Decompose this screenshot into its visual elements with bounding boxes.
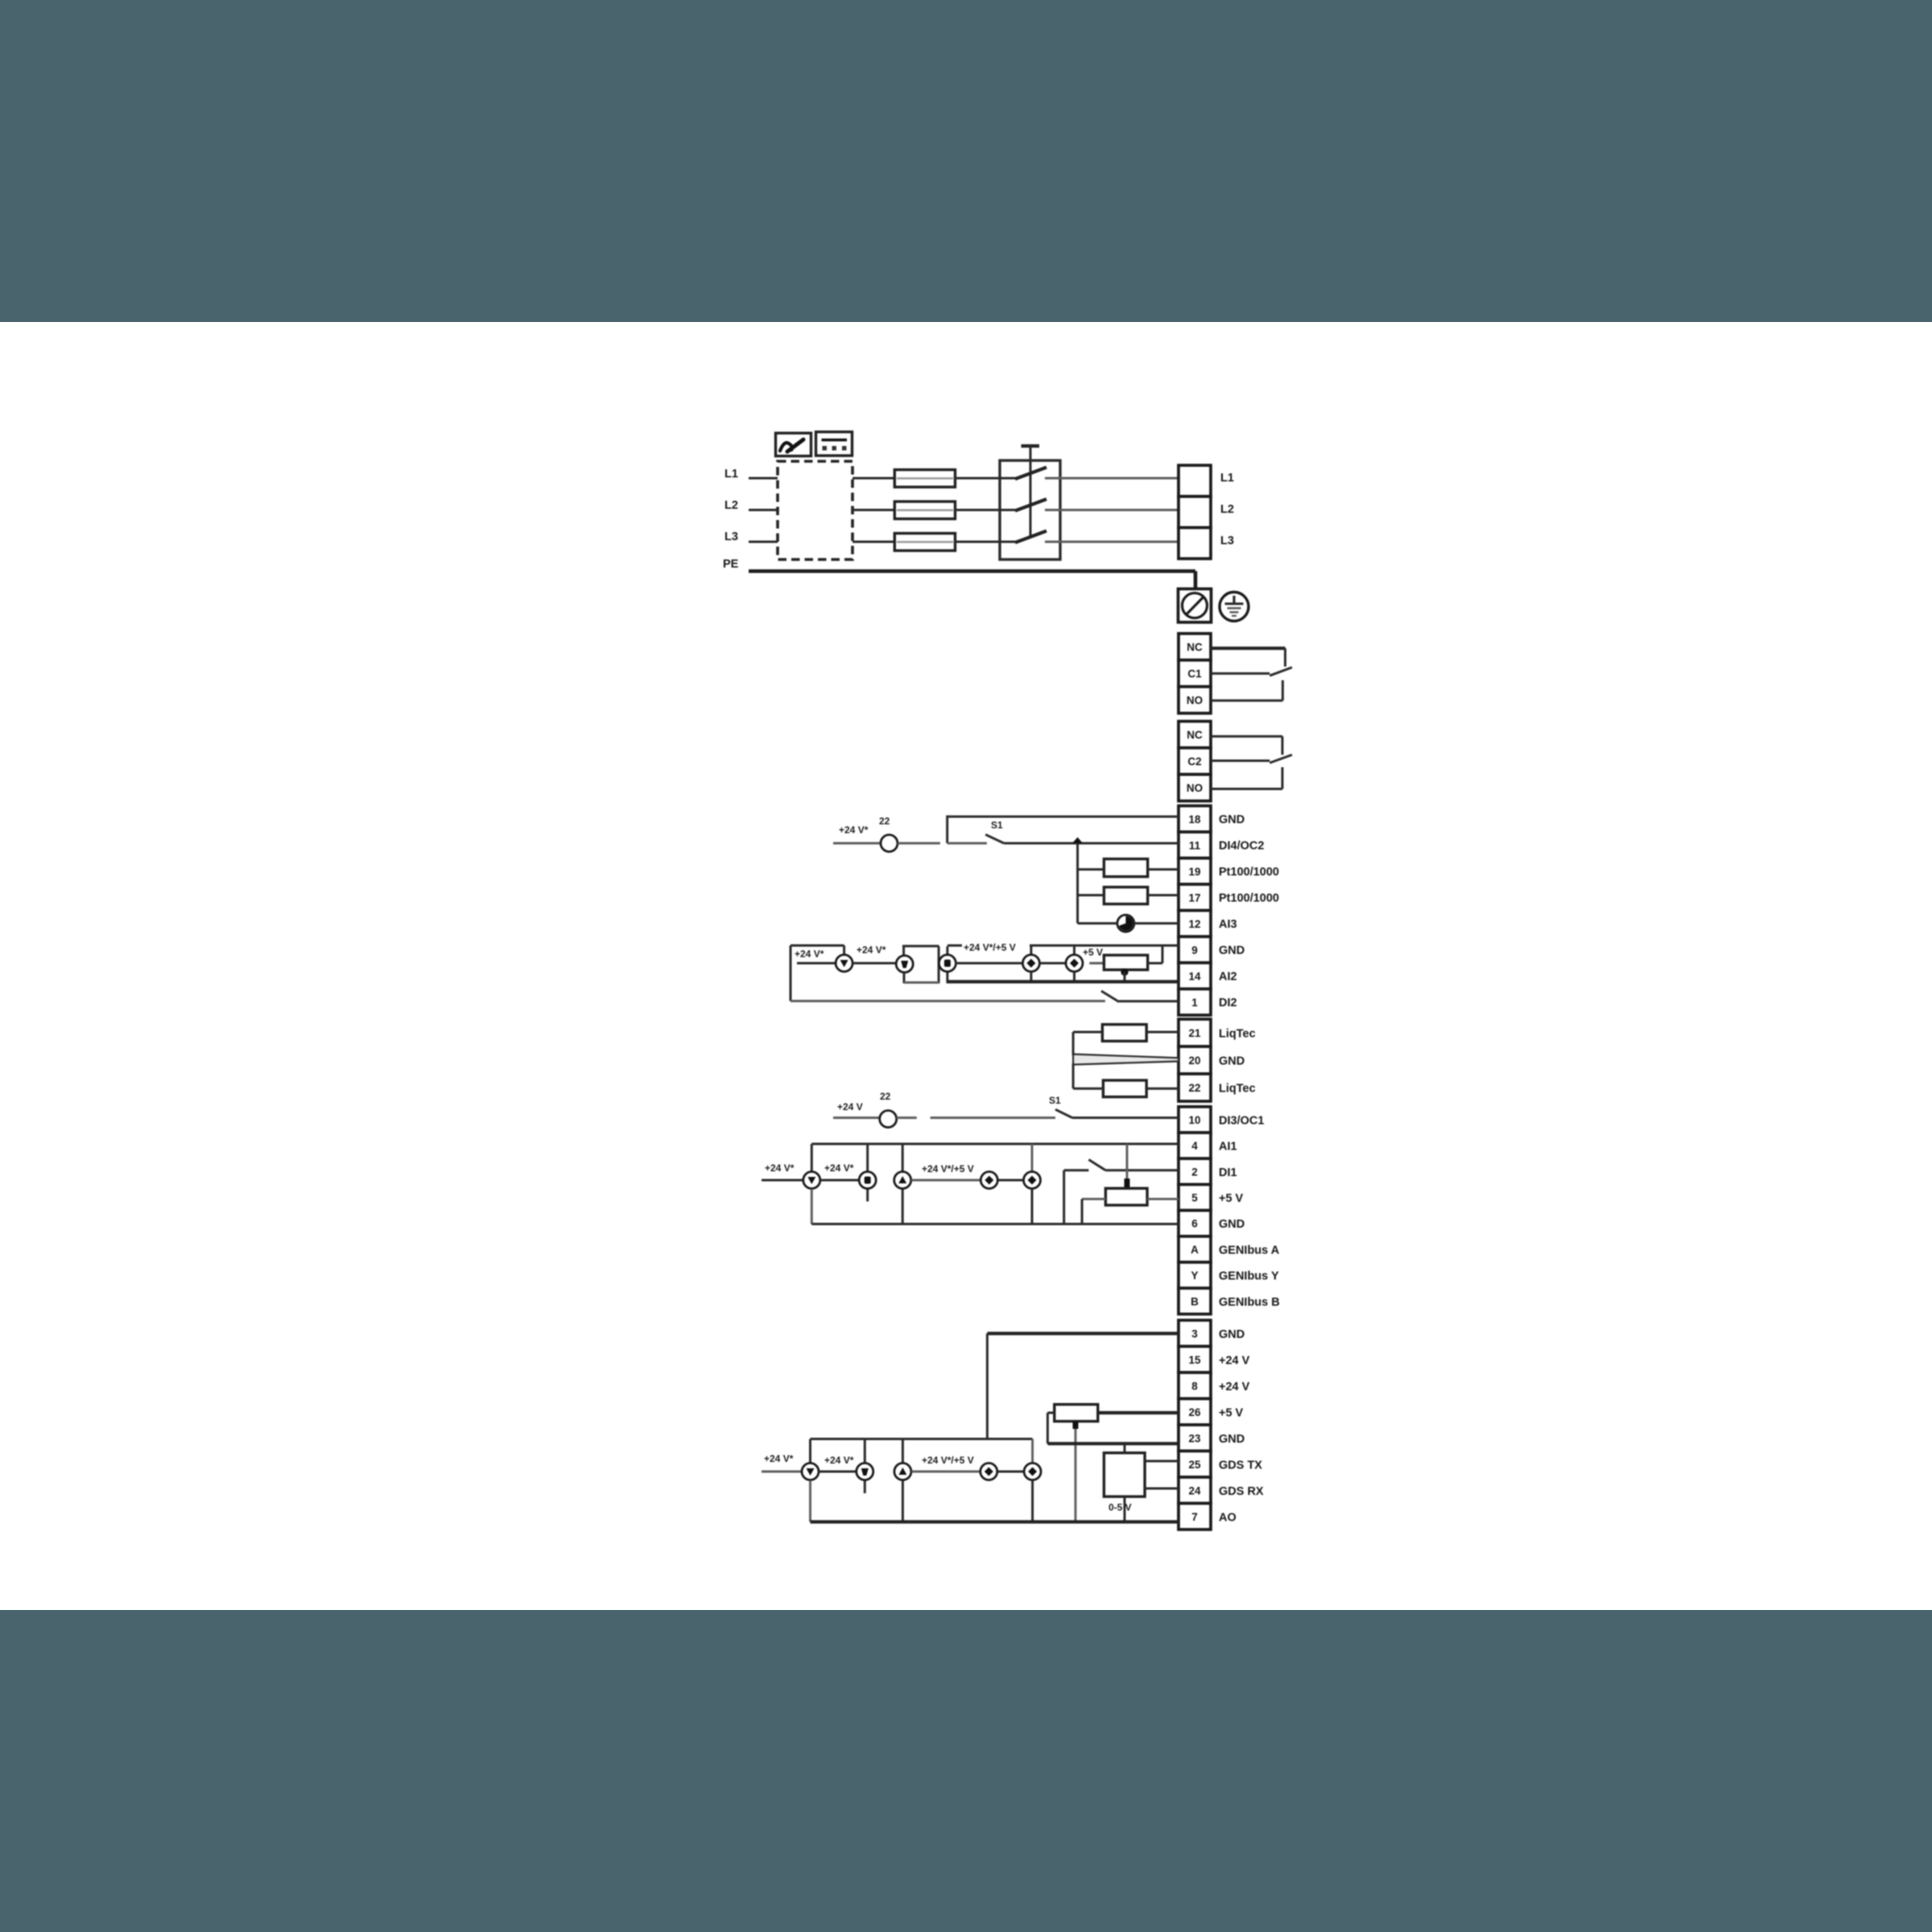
svg-text:AI3: AI3	[1219, 919, 1237, 931]
svg-text:+24 V*: +24 V*	[857, 944, 886, 956]
svg-text:24: 24	[1188, 1484, 1201, 1496]
svg-text:NO: NO	[1187, 695, 1203, 707]
svg-text:15: 15	[1188, 1354, 1201, 1366]
svg-text:4: 4	[1191, 1140, 1198, 1152]
svg-text:21: 21	[1188, 1027, 1201, 1039]
svg-text:GENIbus A: GENIbus A	[1219, 1244, 1280, 1257]
svg-text:GND: GND	[1219, 1328, 1245, 1341]
svg-text:GDS TX: GDS TX	[1219, 1459, 1262, 1472]
svg-text:GND: GND	[1219, 814, 1245, 827]
svg-text:LiqTec: LiqTec	[1219, 1083, 1256, 1096]
svg-text:DI4/OC2: DI4/OC2	[1219, 840, 1264, 852]
svg-text:+24 V*/+5 V: +24 V*/+5 V	[922, 1163, 974, 1174]
svg-text:GND: GND	[1219, 1218, 1245, 1231]
svg-text:NO: NO	[1187, 782, 1203, 795]
svg-text:GENIbus Y: GENIbus Y	[1219, 1270, 1279, 1283]
svg-text:GND: GND	[1219, 1055, 1245, 1068]
svg-text:8: 8	[1191, 1380, 1198, 1392]
svg-text:+5 V: +5 V	[1219, 1192, 1244, 1205]
svg-text:18: 18	[1188, 813, 1201, 825]
svg-text:L1: L1	[724, 468, 738, 481]
svg-text:11: 11	[1189, 840, 1201, 852]
svg-text:DI2: DI2	[1219, 997, 1237, 1009]
svg-text:AI1: AI1	[1219, 1141, 1237, 1154]
svg-text:LiqTec: LiqTec	[1219, 1028, 1256, 1041]
svg-text:DI3/OC1: DI3/OC1	[1219, 1114, 1264, 1127]
svg-text:GND: GND	[1219, 944, 1245, 957]
svg-text:22: 22	[879, 815, 890, 827]
svg-text:B: B	[1191, 1295, 1199, 1307]
svg-text:5: 5	[1191, 1192, 1198, 1204]
svg-text:9: 9	[1191, 944, 1198, 956]
svg-text:+5 V: +5 V	[1219, 1406, 1244, 1419]
svg-text:14: 14	[1188, 970, 1201, 982]
svg-text:+24 V*: +24 V*	[764, 1453, 794, 1464]
svg-text:GDS RX: GDS RX	[1219, 1485, 1264, 1498]
svg-text:DI1: DI1	[1219, 1166, 1237, 1179]
svg-text:NC: NC	[1187, 642, 1203, 654]
svg-text:AI2: AI2	[1219, 971, 1237, 984]
svg-text:+24 V*: +24 V*	[839, 824, 869, 836]
svg-text:A: A	[1191, 1244, 1199, 1256]
svg-text:C1: C1	[1187, 668, 1202, 680]
svg-text:3: 3	[1191, 1327, 1198, 1340]
svg-text:Pt100/1000: Pt100/1000	[1219, 866, 1279, 879]
svg-text:2: 2	[1191, 1166, 1198, 1178]
svg-text:17: 17	[1188, 892, 1200, 904]
svg-text:26: 26	[1188, 1406, 1201, 1418]
svg-text:0-5 V: 0-5 V	[1108, 1502, 1132, 1513]
svg-text:+24 V*: +24 V*	[795, 948, 824, 960]
svg-text:L1: L1	[1220, 472, 1234, 485]
svg-text:AO: AO	[1219, 1511, 1236, 1524]
svg-text:22: 22	[1188, 1082, 1200, 1094]
svg-text:6: 6	[1191, 1218, 1198, 1230]
svg-text:+24 V: +24 V	[1219, 1354, 1250, 1367]
svg-text:Y: Y	[1191, 1269, 1198, 1282]
svg-text:GENIbus B: GENIbus B	[1219, 1296, 1280, 1309]
svg-text:+24 V: +24 V	[837, 1101, 863, 1113]
svg-text:7: 7	[1191, 1511, 1198, 1523]
svg-text:+24 V: +24 V	[1219, 1381, 1250, 1393]
svg-text:+24 V*: +24 V*	[765, 1162, 795, 1174]
svg-text:+24 V*: +24 V*	[824, 1162, 854, 1174]
svg-text:+5 V: +5 V	[1083, 947, 1103, 958]
svg-text:1: 1	[1191, 997, 1198, 1009]
svg-text:GND: GND	[1219, 1433, 1245, 1446]
svg-text:+24 V*/+5 V: +24 V*/+5 V	[922, 1455, 974, 1466]
svg-text:L3: L3	[724, 530, 738, 543]
svg-text:Pt100/1000: Pt100/1000	[1219, 892, 1279, 905]
svg-text:19: 19	[1188, 865, 1200, 877]
svg-text:PE: PE	[723, 558, 739, 571]
svg-text:NC: NC	[1187, 729, 1203, 741]
svg-text:S1: S1	[991, 819, 1003, 831]
svg-text:23: 23	[1188, 1432, 1201, 1444]
svg-text:25: 25	[1188, 1459, 1201, 1471]
svg-text:+24 V*: +24 V*	[824, 1455, 854, 1466]
svg-text:20: 20	[1188, 1055, 1200, 1067]
svg-text:L2: L2	[724, 499, 738, 512]
svg-text:10: 10	[1188, 1114, 1200, 1126]
svg-text:22: 22	[880, 1091, 891, 1102]
svg-text:+24 V*/+5 V: +24 V*/+5 V	[964, 942, 1016, 953]
svg-text:S1: S1	[1049, 1095, 1061, 1106]
svg-text:L2: L2	[1220, 503, 1234, 516]
svg-text:C2: C2	[1187, 756, 1201, 768]
svg-text:L3: L3	[1220, 535, 1234, 547]
svg-text:12: 12	[1188, 918, 1200, 930]
